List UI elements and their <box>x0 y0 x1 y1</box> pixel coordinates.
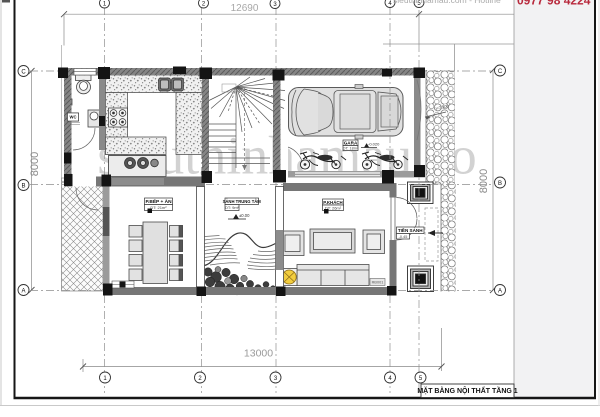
svg-text:B: B <box>21 184 25 190</box>
svg-text:B: B <box>498 181 502 187</box>
svg-text:12690: 12690 <box>231 3 259 14</box>
svg-text:RĐ001: RĐ001 <box>372 281 384 285</box>
svg-text:GARA: GARA <box>344 141 358 146</box>
svg-text:DT: 21m²: DT: 21m² <box>150 205 167 210</box>
svg-text:0977 98 4224: 0977 98 4224 <box>517 0 591 8</box>
svg-text:WC: WC <box>70 115 77 120</box>
svg-text:sieuthinhamau.com - Hotline: sieuthinhamau.com - Hotline <box>393 0 501 5</box>
svg-text:P.KHÁCH: P.KHÁCH <box>323 200 342 205</box>
svg-text:13000: 13000 <box>244 348 273 360</box>
svg-text:-0.45: -0.45 <box>399 235 408 239</box>
svg-text:A: A <box>498 289 502 295</box>
svg-text:C: C <box>498 69 503 75</box>
svg-text:C: C <box>21 70 26 76</box>
svg-text:SẢNH TRUNG TÂM: SẢNH TRUNG TÂM <box>223 199 262 204</box>
svg-text:A: A <box>21 289 25 295</box>
svg-text:-0.020: -0.020 <box>368 142 380 147</box>
svg-text:±0.00: ±0.00 <box>239 213 250 218</box>
svg-text:DT: 9m²: DT: 9m² <box>225 205 240 210</box>
svg-text:TIỀN SẢNH: TIỀN SẢNH <box>398 227 423 233</box>
svg-text:8000: 8000 <box>29 152 41 176</box>
svg-text:8000: 8000 <box>478 169 490 193</box>
svg-text:P.BẾP + ĂN: P.BẾP + ĂN <box>145 198 172 205</box>
svg-text:DT: 18m²: DT: 18m² <box>343 147 359 151</box>
